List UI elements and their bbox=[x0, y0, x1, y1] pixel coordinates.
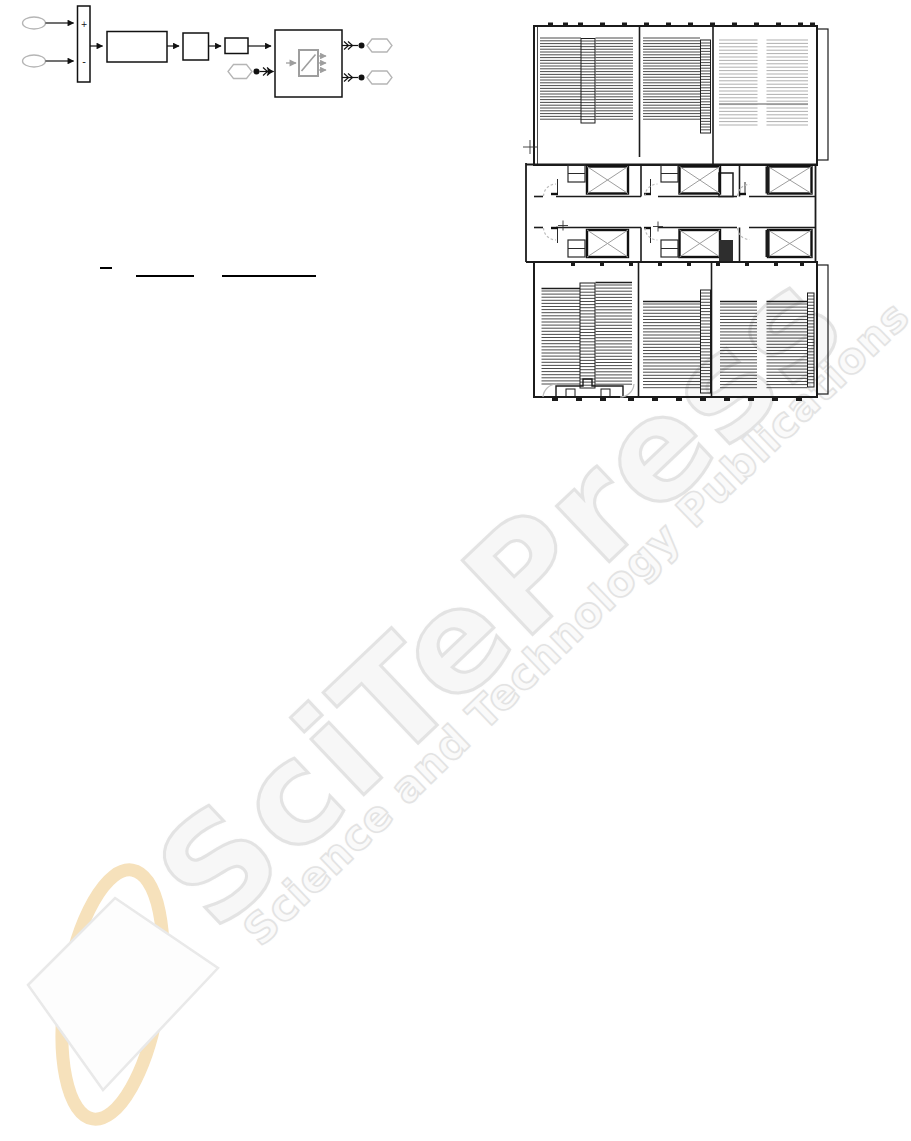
fraction-bar bbox=[100, 267, 112, 269]
fraction-bar bbox=[222, 275, 316, 278]
building-floor-plan bbox=[516, 8, 850, 412]
simulink-block-diagram: +- bbox=[14, 0, 404, 105]
fraction-bar bbox=[136, 275, 194, 278]
svg-text:-: - bbox=[82, 56, 86, 67]
scitepress-logo bbox=[8, 840, 243, 1140]
paper-page: SciTePress Science and Technology Public… bbox=[0, 0, 911, 1141]
svg-text:+: + bbox=[81, 20, 88, 29]
